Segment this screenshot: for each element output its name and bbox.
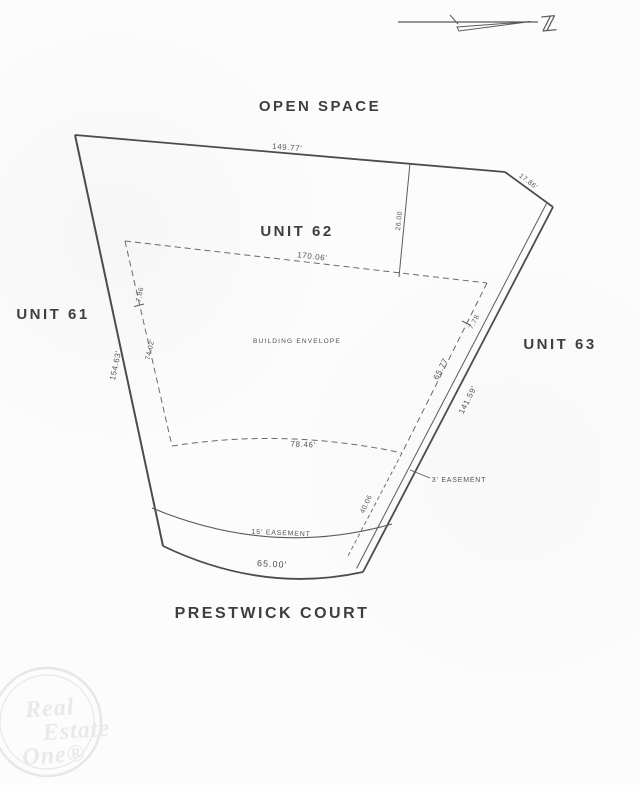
dim-envelope-right-upper: 7.78 [468,314,481,331]
unit-63-label: UNIT 63 [523,336,596,353]
unit-61-label: UNIT 61 [16,306,89,323]
envelope-top-line [125,241,487,283]
dim-envelope-left-upper: 7.86 [136,287,146,303]
north-symbol-icon: ℤ [540,11,558,37]
street-label: PRESTWICK COURT [175,605,370,622]
boundary-right-inner [357,204,547,569]
realestate-one-watermark: Real Estate One® [0,664,113,780]
plat-page: ℤ [0,0,640,785]
front-easement-label: 15' EASEMENT [251,529,310,539]
building-envelope-label: BUILDING ENVELOPE [253,338,341,345]
plat-drawing: ℤ [0,0,640,785]
tick-left [134,304,144,307]
open-space-label: OPEN SPACE [259,98,381,115]
dim-envelope-bottom: 78.46' [290,439,316,449]
north-arrow: ℤ [398,11,558,37]
dim-envelope-top: 170.06' [297,250,328,263]
dim-envelope-left: 74.02' [145,339,157,361]
dim-top-offset: 26.00 [395,211,404,231]
envelope-extension-line [348,453,402,556]
boundary-top [75,135,505,172]
watermark-line3: One® [22,740,87,770]
envelope-bottom-arc [172,438,402,453]
dim-envelope-right: 65.77 [432,357,450,382]
north-arrow-head [457,22,531,32]
dim-frontage: 65.00' [257,558,288,570]
side-easement-label: 3' EASEMENT [432,477,486,484]
building-envelope-outline [125,241,487,556]
dim-right-boundary: 141.59' [457,384,479,415]
dim-left-boundary: 154.63' [108,350,123,381]
unit-62-label: UNIT 62 [260,223,333,240]
boundary-right-outer [363,207,553,572]
